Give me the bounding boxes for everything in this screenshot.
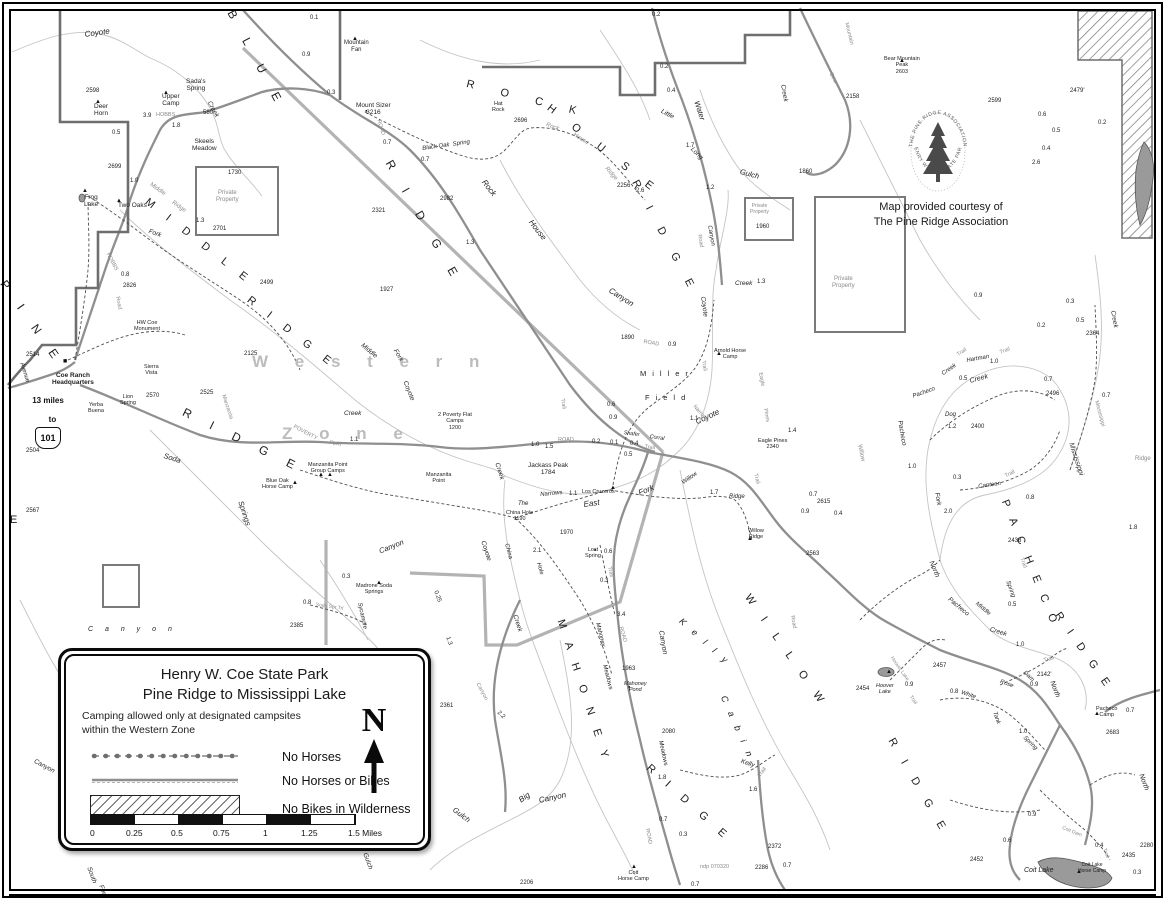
dot-marker-icon: ●	[628, 685, 630, 689]
camp-marker-icon: ▲	[116, 198, 122, 204]
dot-marker-icon: ●	[365, 109, 367, 113]
camp-marker-icon: ▲	[1094, 711, 1100, 717]
highway-route-number: 101	[40, 433, 55, 443]
pine-tree-icon	[923, 122, 953, 182]
map-credit: Map provided courtesy of The Pine Ridge …	[856, 200, 1026, 230]
scale-tick: 0.5	[171, 828, 183, 838]
camp-marker-icon: ▲	[886, 669, 892, 675]
north-arrow: N	[351, 706, 397, 800]
camp-marker-icon: ▲	[318, 472, 324, 478]
north-label: N	[351, 706, 397, 737]
camp-marker-icon: ▲	[82, 188, 88, 194]
camp-marker-icon: ▲	[292, 480, 298, 486]
us-101-shield-icon: 101	[35, 427, 61, 449]
legend-box: Henry W. Coe State Park Pine Ridge to Mi…	[58, 648, 431, 851]
camp-marker-icon: ▲	[747, 536, 753, 542]
scale-bar-ticks: 0 0.25 0.5 0.75 1 1.25 1.5 Miles	[90, 828, 390, 840]
peak-marker-icon: ▲	[899, 58, 905, 64]
map-frame-bottom-rule	[9, 894, 1156, 896]
no-horses-line-icon	[90, 748, 240, 766]
scale-tick: 0	[90, 828, 95, 838]
highway-101-marker: 13 miles to 101	[24, 396, 72, 449]
scale-tick: 1.25	[301, 828, 318, 838]
camp-marker-icon: ▲	[95, 99, 101, 105]
camp-marker-icon: ▲	[163, 90, 169, 96]
dot-marker-icon: ●	[594, 548, 596, 552]
scale-tick: 0.75	[213, 828, 230, 838]
camp-marker-icon: ▲	[1076, 869, 1082, 875]
camp-marker-icon: ▲	[631, 864, 637, 870]
map-page: B L U ER I D G ER O C KH O U S ER I D G …	[0, 0, 1165, 900]
legend-inner-border: Henry W. Coe State Park Pine Ridge to Mi…	[64, 654, 425, 845]
scale-tick: 1	[263, 828, 268, 838]
highway-note-line1: 13 miles	[32, 396, 64, 405]
camp-marker-icon: ▲	[327, 472, 333, 478]
bldg-marker-icon: ■	[63, 358, 67, 365]
credit-line-2: The Pine Ridge Association	[856, 215, 1026, 230]
north-arrow-icon	[363, 737, 385, 795]
pine-ridge-association-logo: THE PINE RIDGE ASSOCIATION HENRY W. COE …	[903, 106, 973, 198]
scale-bar: 0 0.25 0.5 0.75 1 1.25 1.5 Miles	[90, 814, 390, 840]
legend-title-line1: Henry W. Coe State Park	[66, 665, 423, 685]
camp-marker-icon: ▲	[376, 580, 382, 586]
legend-item-label: No Horses	[282, 750, 341, 764]
scale-tick: 0.25	[126, 828, 143, 838]
scale-bar-segments	[90, 814, 356, 825]
credit-line-1: Map provided courtesy of	[856, 200, 1026, 215]
camp-marker-icon: ▲	[610, 485, 616, 491]
camp-marker-icon: ▲	[716, 351, 722, 357]
highway-note-line2: to	[49, 415, 57, 424]
no-horses-or-bikes-line-icon	[90, 772, 240, 790]
peak-marker-icon: ▲	[352, 36, 358, 42]
scale-tick: 1.5 Miles	[348, 828, 382, 838]
